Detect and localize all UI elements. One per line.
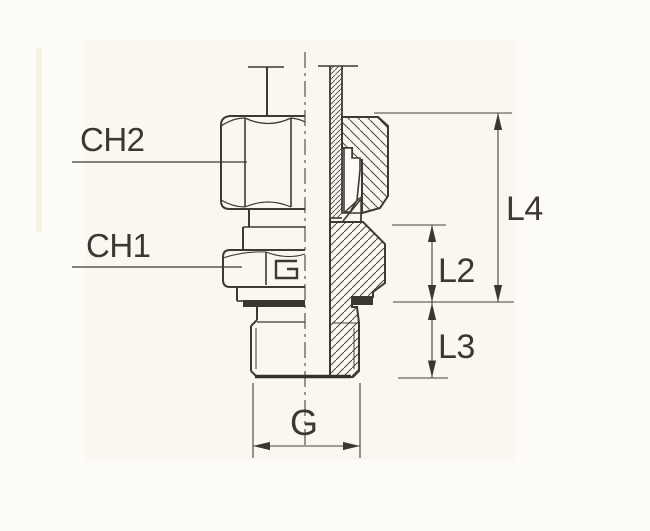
label-g: G xyxy=(290,402,318,443)
drawing-page: CH2 CH1 L4 L2 L3 G xyxy=(0,0,650,531)
label-l4: L4 xyxy=(506,190,543,228)
tube-wall-section xyxy=(330,66,342,218)
label-l3: L3 xyxy=(438,328,475,366)
paper-stain xyxy=(36,48,42,233)
label-ch2: CH2 xyxy=(80,121,145,158)
seal-ring-edge xyxy=(243,300,305,307)
label-l2: L2 xyxy=(438,252,475,290)
label-ch1: CH1 xyxy=(86,227,151,264)
fitting-drawing: CH2 CH1 L4 L2 L3 G xyxy=(0,0,650,531)
seal-ring-section xyxy=(352,297,373,305)
